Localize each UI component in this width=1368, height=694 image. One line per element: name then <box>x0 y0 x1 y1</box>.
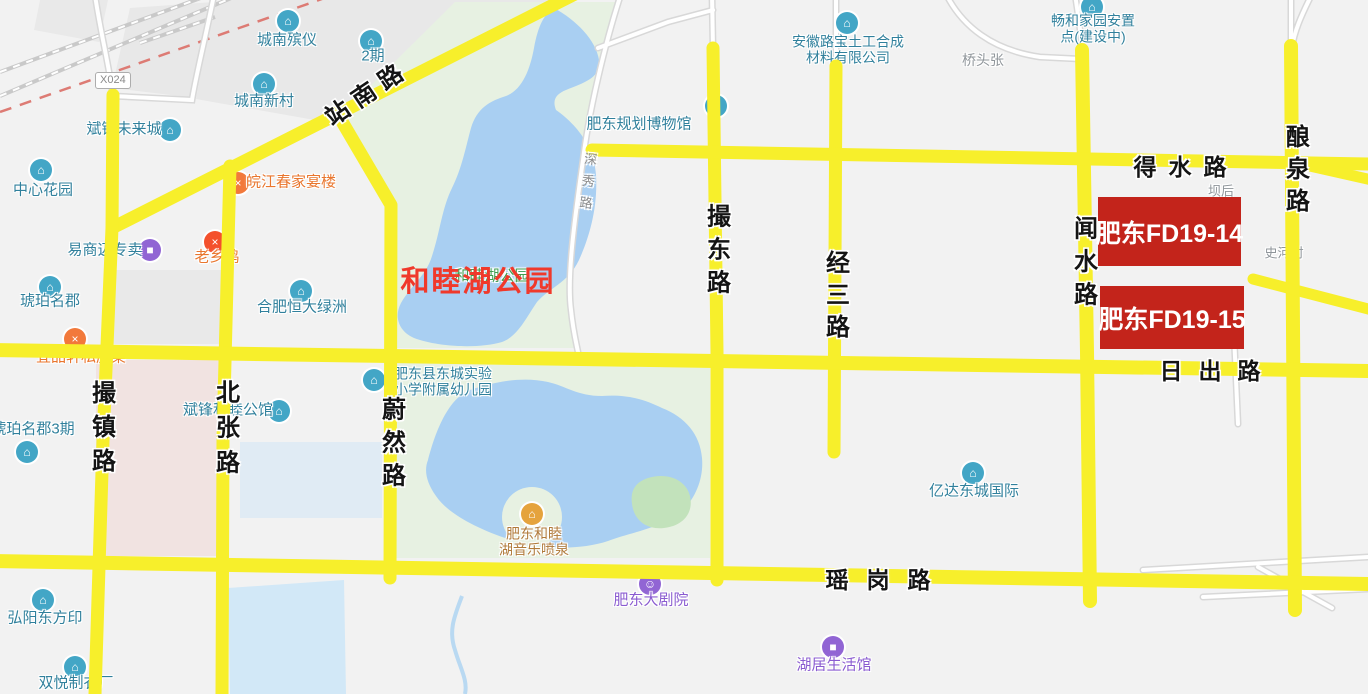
parcel-annotation-2: 肥东FD19-15 <box>1100 286 1244 349</box>
map-viewport[interactable]: ⌂城南殡仪⌂2期⌂城南新村⌂斌锋未来城⌂中心花园■易商迈专卖×老乡鸡×皖江春家宴… <box>0 0 1368 694</box>
annotation-layer: 肥东FD19-14肥东FD19-15和睦湖公园 <box>0 0 1368 694</box>
parcel-annotation-1: 肥东FD19-14 <box>1098 197 1241 266</box>
park-highlight-text: 和睦湖公园 <box>400 258 555 300</box>
